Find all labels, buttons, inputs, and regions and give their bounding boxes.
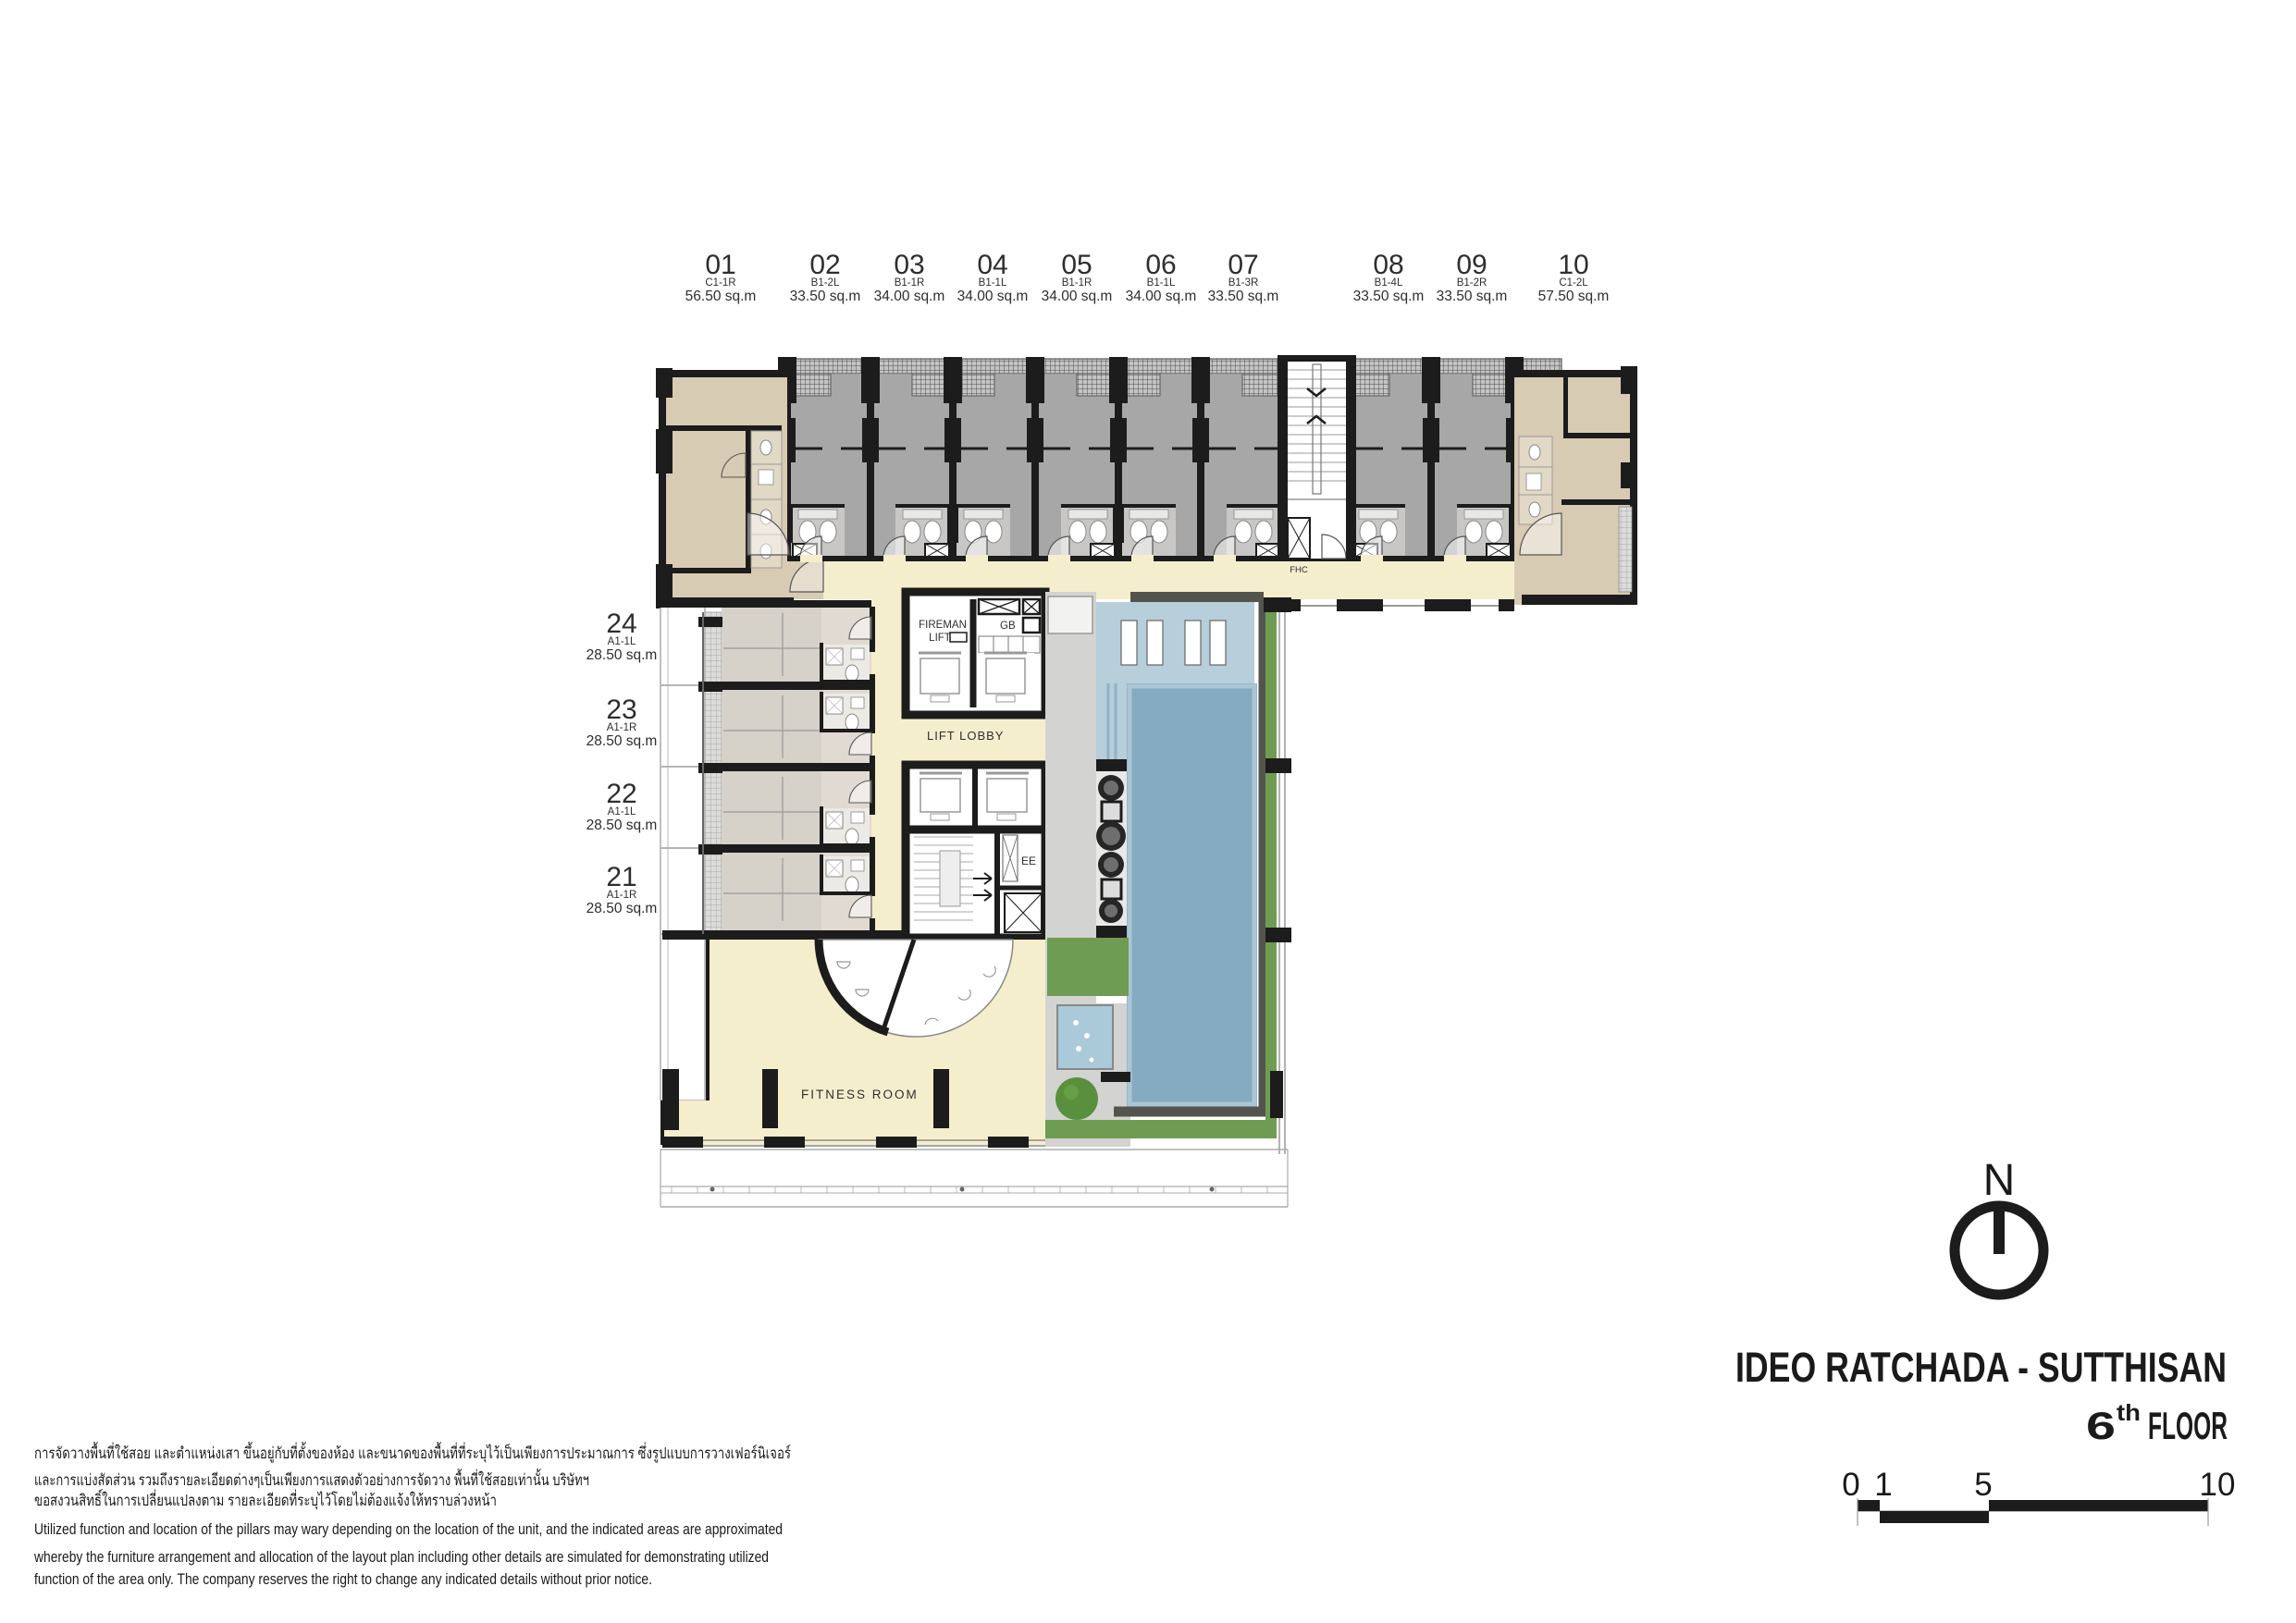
svg-text:C1-2L: C1-2L <box>1559 277 1588 289</box>
svg-text:1: 1 <box>1874 1467 1892 1503</box>
svg-text:23: 23 <box>606 695 636 725</box>
svg-text:21: 21 <box>606 862 636 892</box>
svg-text:B1-1L: B1-1L <box>979 277 1007 289</box>
svg-text:06: 06 <box>1145 250 1176 280</box>
svg-text:B1-1L: B1-1L <box>1147 277 1176 289</box>
svg-text:th: th <box>2117 1400 2141 1426</box>
svg-text:A1-1L: A1-1L <box>608 636 636 647</box>
svg-text:5: 5 <box>1974 1467 1992 1503</box>
svg-text:whereby the furniture arrangem: whereby the furniture arrangement and al… <box>33 1548 769 1566</box>
svg-text:FHC: FHC <box>1290 565 1308 575</box>
svg-text:28.50 sq.m: 28.50 sq.m <box>586 818 658 833</box>
svg-text:09: 09 <box>1456 250 1487 280</box>
svg-text:C1-1R: C1-1R <box>705 277 735 289</box>
svg-text:57.50 sq.m: 57.50 sq.m <box>1538 289 1610 304</box>
svg-text:02: 02 <box>809 250 840 280</box>
svg-text:A1-1R: A1-1R <box>607 722 637 733</box>
svg-text:34.00 sq.m: 34.00 sq.m <box>1126 289 1197 304</box>
svg-text:34.00 sq.m: 34.00 sq.m <box>874 289 945 304</box>
svg-text:B1-2L: B1-2L <box>811 277 840 289</box>
svg-text:B1-3R: B1-3R <box>1228 277 1259 289</box>
svg-text:GB: GB <box>1000 621 1016 632</box>
svg-text:56.50 sq.m: 56.50 sq.m <box>685 289 757 304</box>
svg-text:34.00 sq.m: 34.00 sq.m <box>1042 289 1113 304</box>
svg-text:FITNESS ROOM: FITNESS ROOM <box>801 1088 919 1101</box>
svg-text:33.50 sq.m: 33.50 sq.m <box>1353 289 1425 304</box>
svg-text:และการแบ่งสัดส่วน รวมถึงรายละเ: และการแบ่งสัดส่วน รวมถึงรายละเอียดต่างๆเ… <box>34 1469 589 1489</box>
svg-text:ขอสงวนสิทธิ์ในการเปลี่ยนแปลงตา: ขอสงวนสิทธิ์ในการเปลี่ยนแปลงตาม รายละเอี… <box>34 1489 497 1510</box>
svg-text:6: 6 <box>2086 1404 2116 1447</box>
svg-text:function of the area only. The: function of the area only. The company r… <box>34 1570 652 1588</box>
svg-text:28.50 sq.m: 28.50 sq.m <box>586 901 658 916</box>
svg-text:N: N <box>1983 1156 2016 1205</box>
svg-text:B1-1R: B1-1R <box>1062 277 1092 289</box>
svg-text:B1-1R: B1-1R <box>895 277 925 289</box>
svg-text:FLOOR: FLOOR <box>2148 1404 2228 1447</box>
svg-text:B1-4L: B1-4L <box>1375 277 1403 289</box>
svg-text:01: 01 <box>705 250 735 280</box>
svg-text:05: 05 <box>1061 250 1092 280</box>
svg-text:33.50 sq.m: 33.50 sq.m <box>1208 289 1279 304</box>
svg-text:B1-2R: B1-2R <box>1457 277 1487 289</box>
svg-text:LIFT LOBBY: LIFT LOBBY <box>927 729 1004 743</box>
svg-text:10: 10 <box>1558 250 1588 280</box>
svg-text:08: 08 <box>1373 250 1403 280</box>
svg-text:22: 22 <box>606 779 636 809</box>
svg-text:33.50 sq.m: 33.50 sq.m <box>790 289 861 304</box>
svg-text:10: 10 <box>2200 1467 2236 1503</box>
svg-text:A1-1L: A1-1L <box>608 806 636 818</box>
svg-text:LIFT: LIFT <box>929 633 951 644</box>
svg-text:28.50 sq.m: 28.50 sq.m <box>586 733 658 749</box>
svg-text:07: 07 <box>1228 250 1258 280</box>
svg-text:33.50 sq.m: 33.50 sq.m <box>1437 289 1508 304</box>
svg-text:IDEO RATCHADA - SUTTHISAN: IDEO RATCHADA - SUTTHISAN <box>1735 1344 2227 1391</box>
svg-text:Utilized function and location: Utilized function and location of the pi… <box>34 1520 783 1538</box>
svg-text:24: 24 <box>606 609 636 639</box>
svg-text:28.50 sq.m: 28.50 sq.m <box>586 647 658 663</box>
svg-text:FIREMAN: FIREMAN <box>919 620 967 631</box>
svg-text:EE: EE <box>1021 855 1036 867</box>
svg-text:03: 03 <box>894 250 924 280</box>
svg-text:04: 04 <box>977 250 1007 280</box>
svg-text:0: 0 <box>1842 1467 1859 1503</box>
svg-text:34.00 sq.m: 34.00 sq.m <box>957 289 1029 304</box>
svg-text:การจัดวางพื้นที่ใช้สอย และตำแห: การจัดวางพื้นที่ใช้สอย และตำแหน่งเสา ขึ้… <box>34 1442 791 1463</box>
svg-text:A1-1R: A1-1R <box>607 890 637 901</box>
